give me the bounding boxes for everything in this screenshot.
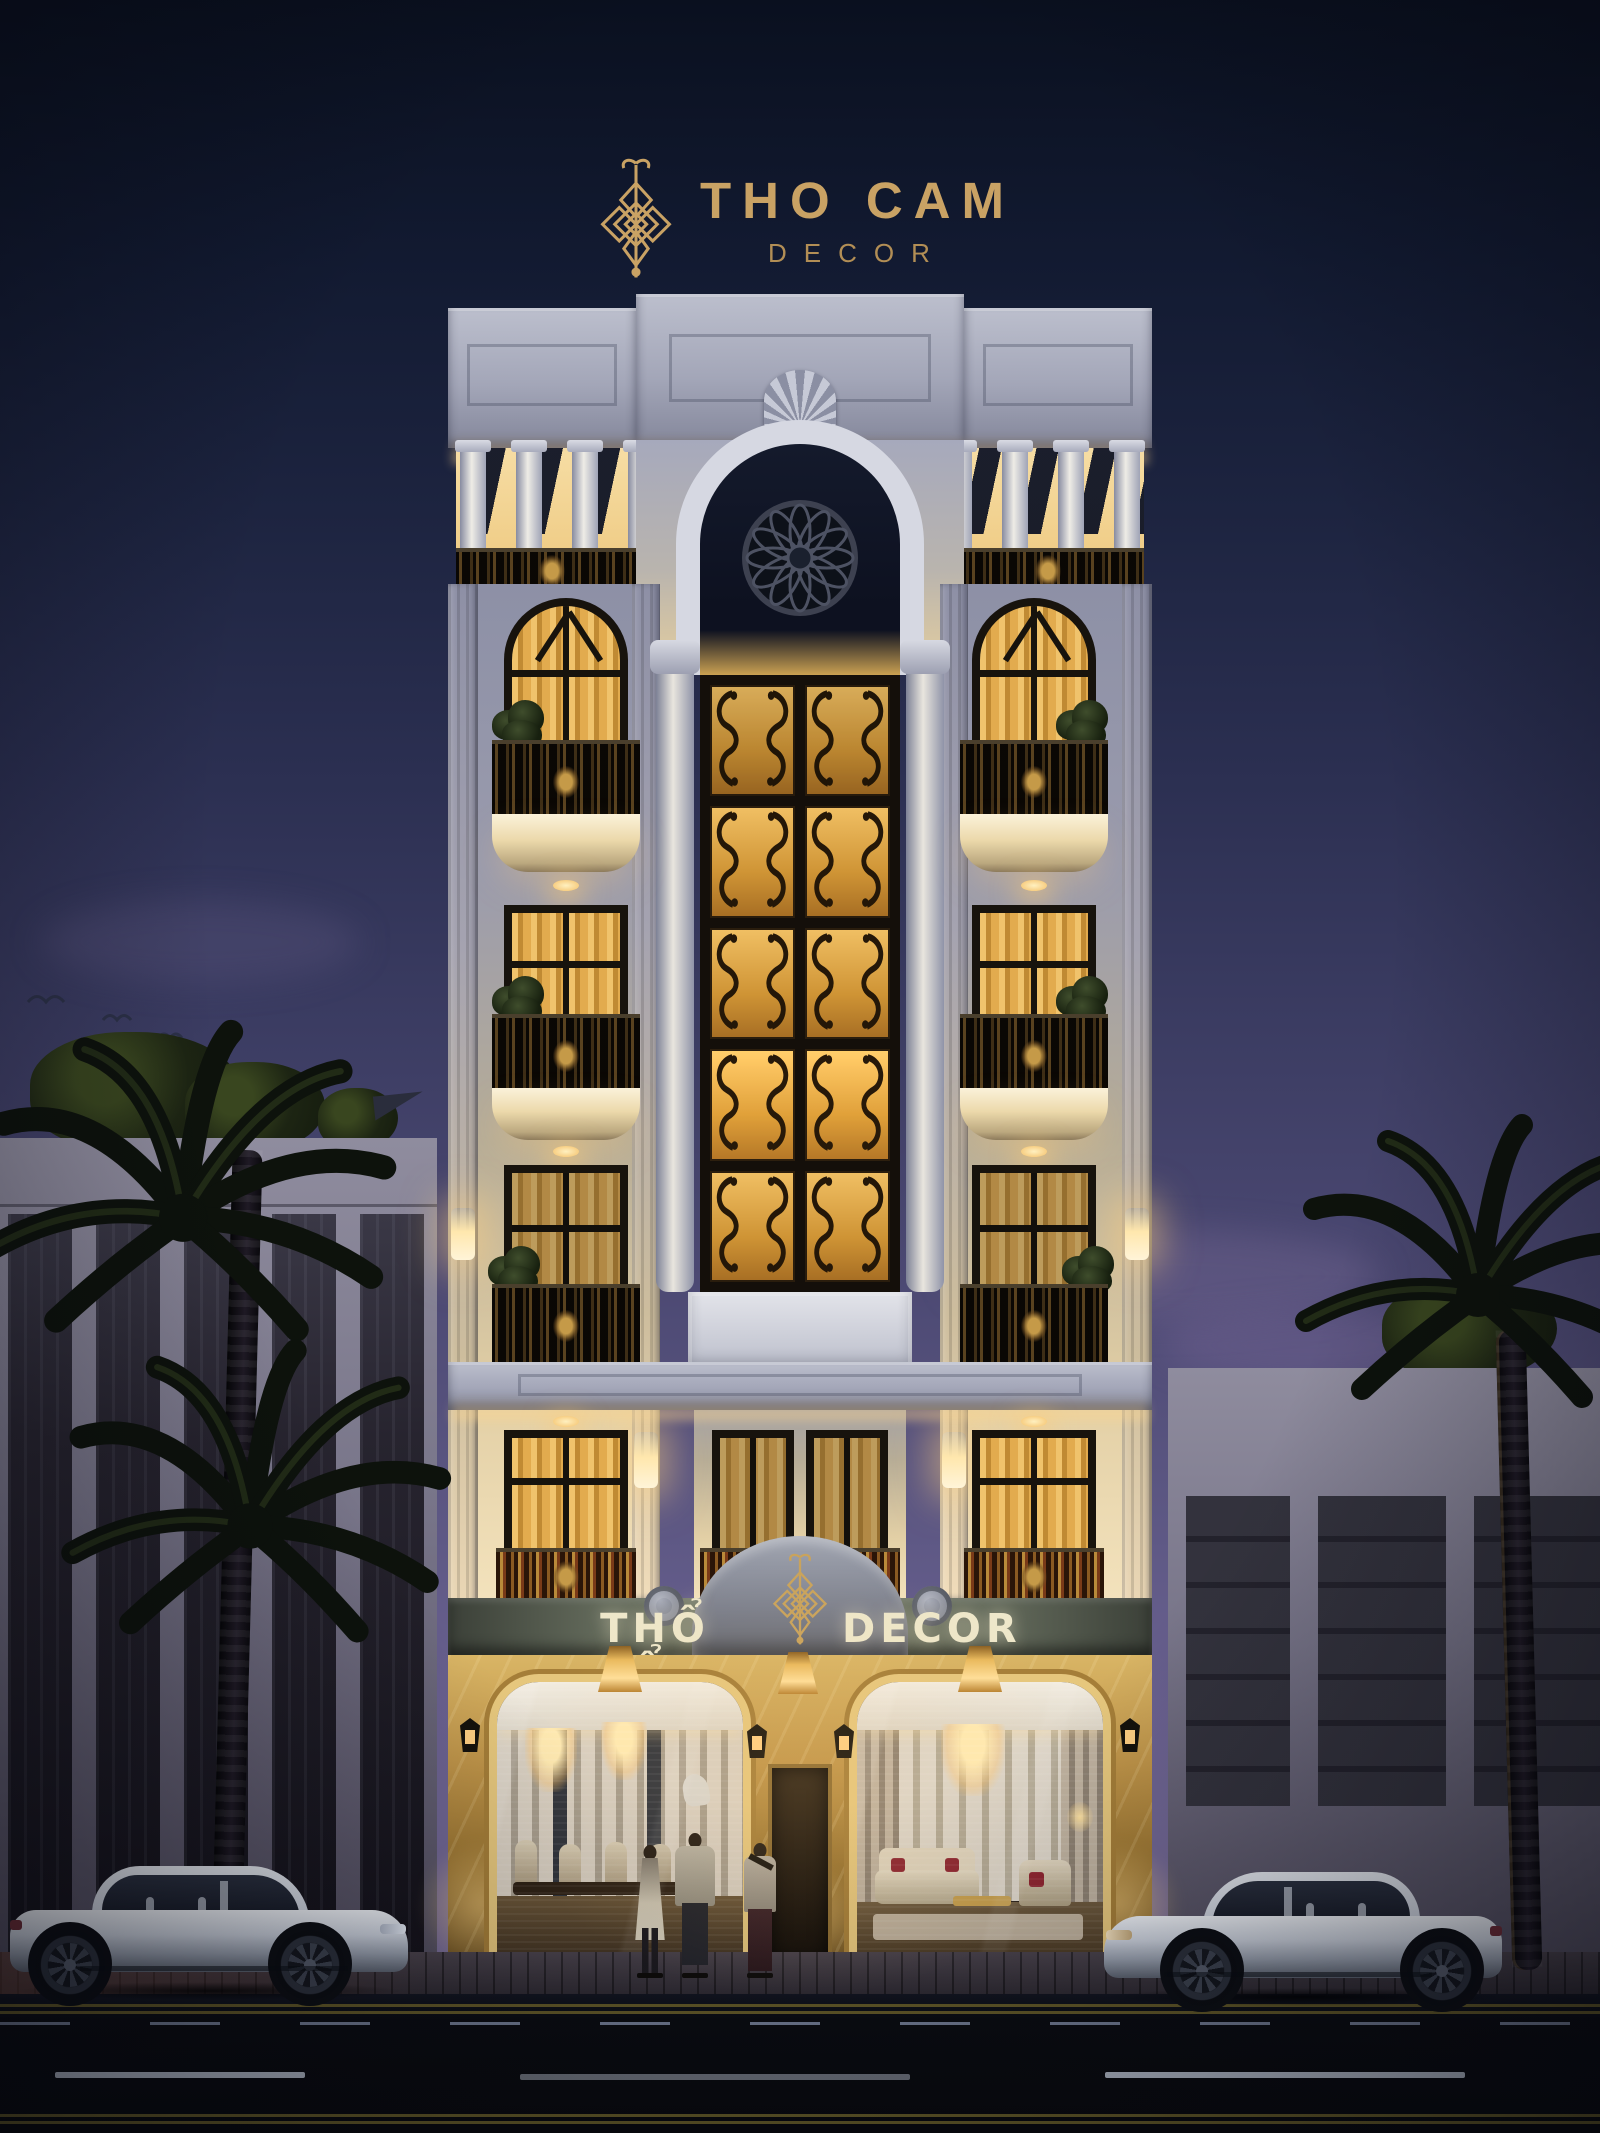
column (1058, 444, 1084, 562)
gold-iron-panel (710, 928, 795, 1039)
column (1114, 444, 1140, 562)
balcony-corbel (960, 1088, 1108, 1140)
transom (980, 1478, 1088, 1485)
transom (980, 1225, 1088, 1232)
ceiling-lamp (553, 1146, 579, 1157)
ceiling-lamp (1021, 1416, 1047, 1427)
arch-inner-glow (700, 630, 900, 675)
car-sill (1164, 1972, 1432, 1977)
balcony-corbel (492, 1088, 640, 1140)
patterned-pants (748, 1909, 772, 1971)
cloud (40, 900, 360, 984)
yellow-line (0, 2114, 1600, 2117)
headlight (380, 1924, 406, 1934)
tracery (1034, 610, 1071, 662)
uplight-sconce (942, 1432, 966, 1488)
endless-knot-icon (771, 1550, 829, 1654)
palm-crown (1278, 1105, 1600, 1425)
transom (512, 1478, 620, 1485)
taillight (1490, 1926, 1502, 1936)
balcony-railing (492, 1284, 640, 1368)
parked-car-left (10, 1866, 408, 2000)
ceiling-lamp (1021, 880, 1047, 891)
transom (512, 670, 620, 677)
engaged-column-right (906, 640, 944, 1292)
palm-crown (0, 1010, 408, 1360)
balcony-railing (960, 1014, 1108, 1098)
ceiling-lamp (1021, 1146, 1047, 1157)
palm-crown (40, 1330, 460, 1660)
gold-coffee-table (953, 1896, 1011, 1906)
red-pillow (891, 1858, 905, 1872)
wheel (1407, 1936, 1477, 2006)
column (1002, 444, 1028, 562)
roof-cornice-left (448, 308, 636, 448)
balcony-railing (960, 1284, 1108, 1368)
dark-window (1186, 1496, 1290, 1806)
wheel (1167, 1936, 1237, 2006)
central-ornate-window-strip (700, 675, 900, 1292)
red-pillow (945, 1858, 959, 1872)
rooftop-brand-sign: THO CAM DECOR (598, 146, 1028, 298)
pants (682, 1903, 708, 1965)
balcony-railing (492, 1014, 640, 1098)
column (572, 444, 598, 562)
gold-iron-panel (710, 806, 795, 917)
pedestrian-woman-dress (630, 1845, 670, 1978)
wheel (275, 1930, 345, 2000)
wheel (35, 1930, 105, 2000)
dark-window (1474, 1496, 1600, 1806)
entrance-door (772, 1768, 828, 1962)
shoes (682, 1973, 708, 1978)
tracery (566, 610, 603, 662)
balcony-railing (492, 740, 640, 824)
transom (512, 961, 620, 968)
gold-iron-panel (805, 1049, 890, 1160)
white-dash (520, 2074, 910, 2080)
rooftop-brand-text: THO CAM DECOR (700, 175, 1015, 269)
transom (980, 670, 1088, 677)
gold-iron-panel (710, 1171, 795, 1282)
gold-iron-panel (805, 806, 890, 917)
car-sill (80, 1966, 348, 1971)
ceiling-lamp (553, 1416, 579, 1427)
pedestrian-man (672, 1833, 718, 1978)
column (516, 444, 542, 562)
shoes (747, 1973, 773, 1978)
shoes (637, 1973, 663, 1978)
column (460, 444, 486, 562)
uplight-sconce (1125, 1208, 1149, 1260)
storefront-sign-right: DECOR (842, 1606, 1018, 1652)
gold-iron-panel (805, 928, 890, 1039)
yellow-line (0, 2121, 1600, 2124)
parked-car-right (1104, 1872, 1502, 2006)
dashed-line (0, 2022, 1600, 2025)
chandelier (601, 1722, 647, 1780)
armchair (1019, 1860, 1071, 1906)
rose-window (740, 498, 860, 618)
rug (873, 1914, 1083, 1940)
endless-knot-icon (598, 148, 674, 296)
gold-iron-panel (805, 1171, 890, 1282)
white-dash (1105, 2072, 1465, 2078)
headlight (1106, 1930, 1132, 1940)
legs (642, 1928, 658, 1974)
brand-title: THO CAM (700, 175, 1015, 226)
gold-iron-panel (710, 1049, 795, 1160)
outer-pilaster-right (1122, 584, 1152, 1655)
dining-chair (515, 1840, 537, 1888)
gold-iron-panel (805, 685, 890, 796)
gold-iron-panel (710, 685, 795, 796)
sweater (675, 1846, 715, 1906)
storefront-right-living-showroom (857, 1682, 1103, 1962)
uplight-sconce (634, 1432, 658, 1488)
head (644, 1845, 657, 1860)
transom (980, 961, 1088, 968)
dark-window (1318, 1496, 1446, 1806)
white-dash (55, 2072, 305, 2078)
night-street-scene: THO CAM DECOR (0, 0, 1600, 2133)
ceiling-lamp (553, 880, 579, 891)
balcony-railing (960, 740, 1108, 824)
road (0, 1994, 1600, 2133)
balcony-corbel (492, 814, 640, 872)
yellow-line (0, 2011, 1600, 2014)
roof-cornice-right (964, 308, 1152, 448)
balcony-corbel (960, 814, 1108, 872)
brand-subtitle: DECOR (700, 238, 1015, 269)
central-parapet-panel (688, 1292, 912, 1372)
transom (512, 1225, 620, 1232)
uplight-sconce (451, 1208, 475, 1260)
floor-lamp-glow (1067, 1802, 1093, 1832)
chandelier (941, 1724, 1005, 1796)
engaged-column-left (656, 640, 694, 1292)
red-pillow (1029, 1872, 1044, 1887)
chandelier (525, 1728, 577, 1792)
taillight (10, 1920, 22, 1930)
pedestrian-woman-bag (740, 1843, 780, 1978)
